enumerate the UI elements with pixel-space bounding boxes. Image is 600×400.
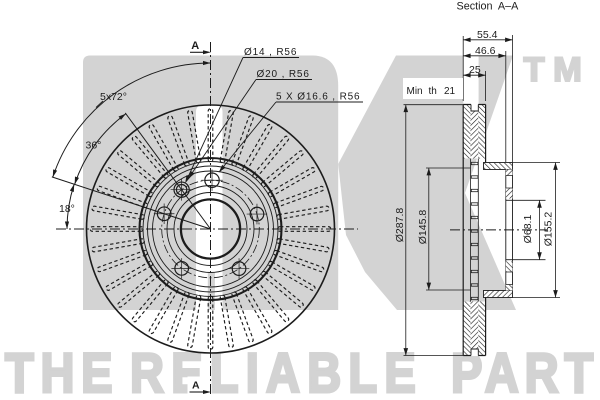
svg-text:55.4: 55.4 [477, 29, 498, 41]
svg-text:Ø14 , R56: Ø14 , R56 [244, 47, 297, 58]
svg-text:46.6: 46.6 [475, 45, 496, 57]
svg-text:Min: Min [407, 86, 423, 97]
svg-text:5x72°: 5x72° [100, 91, 127, 103]
svg-text:A: A [192, 380, 200, 392]
svg-text:Ø145.8: Ø145.8 [417, 210, 429, 245]
svg-text:Ø68.1: Ø68.1 [522, 215, 534, 244]
svg-text:th: th [429, 86, 437, 97]
svg-text:Ø20 , R56: Ø20 , R56 [257, 69, 310, 80]
svg-text:Ø155.2: Ø155.2 [543, 212, 555, 247]
svg-text:36°: 36° [86, 140, 102, 152]
svg-text:18°: 18° [59, 203, 75, 215]
svg-text:Section A–A: Section A–A [457, 1, 520, 13]
svg-text:5 X Ø16.6 , R56: 5 X Ø16.6 , R56 [276, 92, 360, 103]
svg-text:21: 21 [444, 86, 456, 97]
svg-text:Ø287.8: Ø287.8 [394, 208, 406, 243]
svg-text:25: 25 [469, 64, 481, 76]
svg-text:A: A [191, 40, 199, 52]
